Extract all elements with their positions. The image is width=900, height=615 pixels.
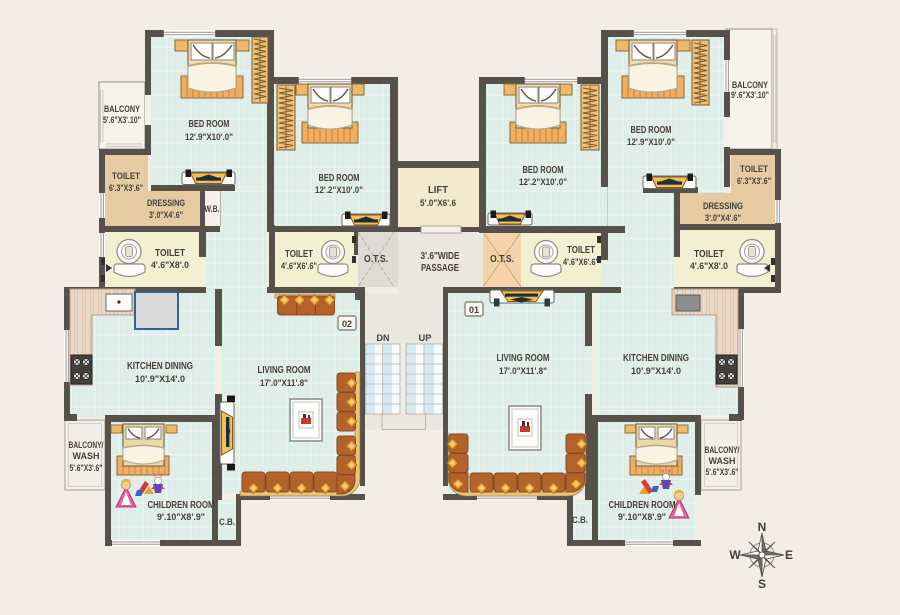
svg-text:9'.10"X8'.9": 9'.10"X8'.9" [618, 512, 666, 523]
svg-text:3'.6"WIDE: 3'.6"WIDE [421, 251, 460, 262]
svg-text:12'.2"X10'.0": 12'.2"X10'.0" [519, 177, 567, 188]
svg-text:DN: DN [377, 333, 390, 343]
svg-text:6'.3"X3'.6": 6'.3"X3'.6" [109, 183, 143, 193]
svg-text:WASH: WASH [709, 456, 736, 466]
svg-text:S: S [758, 577, 766, 591]
svg-text:5'.6"X3'.10": 5'.6"X3'.10" [103, 115, 141, 125]
svg-text:TOILET: TOILET [567, 245, 595, 256]
svg-text:BALCONY: BALCONY [732, 80, 768, 90]
svg-text:LIVING ROOM: LIVING ROOM [497, 353, 550, 364]
svg-text:C.B.: C.B. [572, 515, 588, 525]
svg-text:6'.3"X3'.6": 6'.3"X3'.6" [737, 176, 771, 186]
svg-text:N: N [758, 520, 767, 534]
svg-text:10'.9"X14'.0: 10'.9"X14'.0 [631, 366, 681, 377]
svg-text:12'.2"X10'.0": 12'.2"X10'.0" [315, 185, 363, 196]
svg-text:BED ROOM: BED ROOM [523, 165, 564, 176]
svg-text:BED ROOM: BED ROOM [189, 119, 230, 130]
svg-text:PASSAGE: PASSAGE [421, 263, 459, 274]
svg-text:LIFT: LIFT [428, 185, 448, 196]
svg-text:02: 02 [342, 319, 352, 329]
svg-text:W.B.: W.B. [205, 204, 220, 214]
svg-text:TOILET: TOILET [285, 249, 313, 260]
svg-text:4'.6"X8'.0: 4'.6"X8'.0 [151, 260, 189, 271]
svg-text:9'.6"X3'.10": 9'.6"X3'.10" [731, 90, 769, 100]
svg-text:BED ROOM: BED ROOM [319, 173, 360, 184]
svg-text:BALCONY: BALCONY [104, 104, 140, 114]
svg-text:BED ROOM: BED ROOM [631, 125, 672, 136]
svg-text:KITCHEN DINING: KITCHEN DINING [127, 361, 193, 372]
svg-text:CHILDREN ROOM: CHILDREN ROOM [609, 500, 676, 511]
svg-text:TOILET: TOILET [112, 171, 140, 181]
svg-text:10'.9"X14'.0: 10'.9"X14'.0 [135, 374, 185, 385]
svg-text:KITCHEN DINING: KITCHEN DINING [623, 353, 689, 364]
svg-text:3'.0"X4'.6": 3'.0"X4'.6" [705, 213, 741, 223]
svg-text:DRESSING: DRESSING [703, 201, 743, 211]
svg-text:TOILET: TOILET [155, 248, 185, 259]
svg-text:01: 01 [469, 305, 479, 315]
svg-text:UP: UP [419, 333, 432, 343]
svg-text:E: E [785, 548, 793, 562]
svg-text:O.T.S.: O.T.S. [490, 254, 514, 265]
svg-text:LIVING ROOM: LIVING ROOM [258, 365, 311, 376]
svg-text:3'.0"X4'.6": 3'.0"X4'.6" [149, 210, 183, 220]
svg-text:TOILET: TOILET [740, 164, 768, 174]
svg-text:O.T.S.: O.T.S. [364, 254, 388, 265]
svg-text:C.B.: C.B. [219, 517, 235, 527]
svg-text:12'.9"X10'.0": 12'.9"X10'.0" [185, 132, 233, 143]
svg-text:BALCONY/: BALCONY/ [69, 440, 104, 450]
svg-text:W: W [729, 548, 741, 562]
svg-text:WASH: WASH [73, 451, 100, 461]
svg-text:4'.6"X6'.6": 4'.6"X6'.6" [563, 257, 599, 267]
svg-text:4'.6"X6'.6": 4'.6"X6'.6" [281, 261, 317, 271]
svg-text:5'.6"X3'.6": 5'.6"X3'.6" [706, 467, 739, 477]
svg-text:5'.0"X6'.6: 5'.0"X6'.6 [420, 198, 456, 209]
svg-text:9'.10"X8'.9": 9'.10"X8'.9" [157, 512, 205, 523]
svg-text:CHILDREN ROOM: CHILDREN ROOM [148, 500, 215, 511]
svg-text:17'.0"X11'.8": 17'.0"X11'.8" [499, 366, 547, 377]
svg-text:4'.6"X8'.0: 4'.6"X8'.0 [690, 261, 728, 272]
svg-text:12'.9"X10'.0": 12'.9"X10'.0" [627, 137, 675, 148]
svg-text:5'.6"X3'.6": 5'.6"X3'.6" [70, 463, 103, 473]
svg-text:TOILET: TOILET [694, 249, 724, 260]
svg-text:17'.0"X11'.8": 17'.0"X11'.8" [260, 378, 308, 389]
svg-text:DRESSING: DRESSING [147, 198, 185, 208]
svg-text:BALCONY/: BALCONY/ [705, 445, 740, 455]
